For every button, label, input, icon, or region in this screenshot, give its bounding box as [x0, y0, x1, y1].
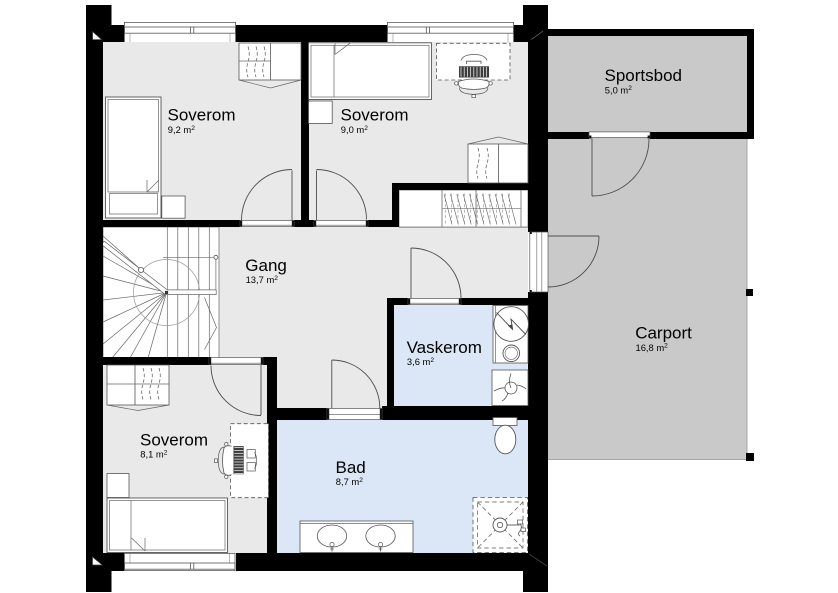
svg-text:8,1 m2: 8,1 m2: [140, 449, 167, 460]
svg-text:Gang: Gang: [245, 256, 287, 275]
svg-text:9,0 m2: 9,0 m2: [341, 124, 368, 135]
svg-text:5,0 m2: 5,0 m2: [605, 84, 632, 95]
svg-text:13,7 m2: 13,7 m2: [246, 274, 279, 285]
svg-text:Soverom: Soverom: [341, 106, 409, 125]
svg-text:3,6 m2: 3,6 m2: [407, 356, 434, 367]
svg-text:Carport: Carport: [635, 324, 692, 343]
svg-text:Sportsbod: Sportsbod: [605, 66, 683, 85]
svg-text:Vaskerom: Vaskerom: [407, 338, 482, 357]
svg-text:9,2 m2: 9,2 m2: [168, 124, 195, 135]
svg-text:Bad: Bad: [336, 458, 366, 477]
svg-text:Soverom: Soverom: [168, 106, 236, 125]
svg-text:Soverom: Soverom: [140, 430, 208, 449]
svg-text:8,7 m2: 8,7 m2: [336, 476, 363, 487]
svg-text:16,8 m2: 16,8 m2: [636, 342, 669, 353]
